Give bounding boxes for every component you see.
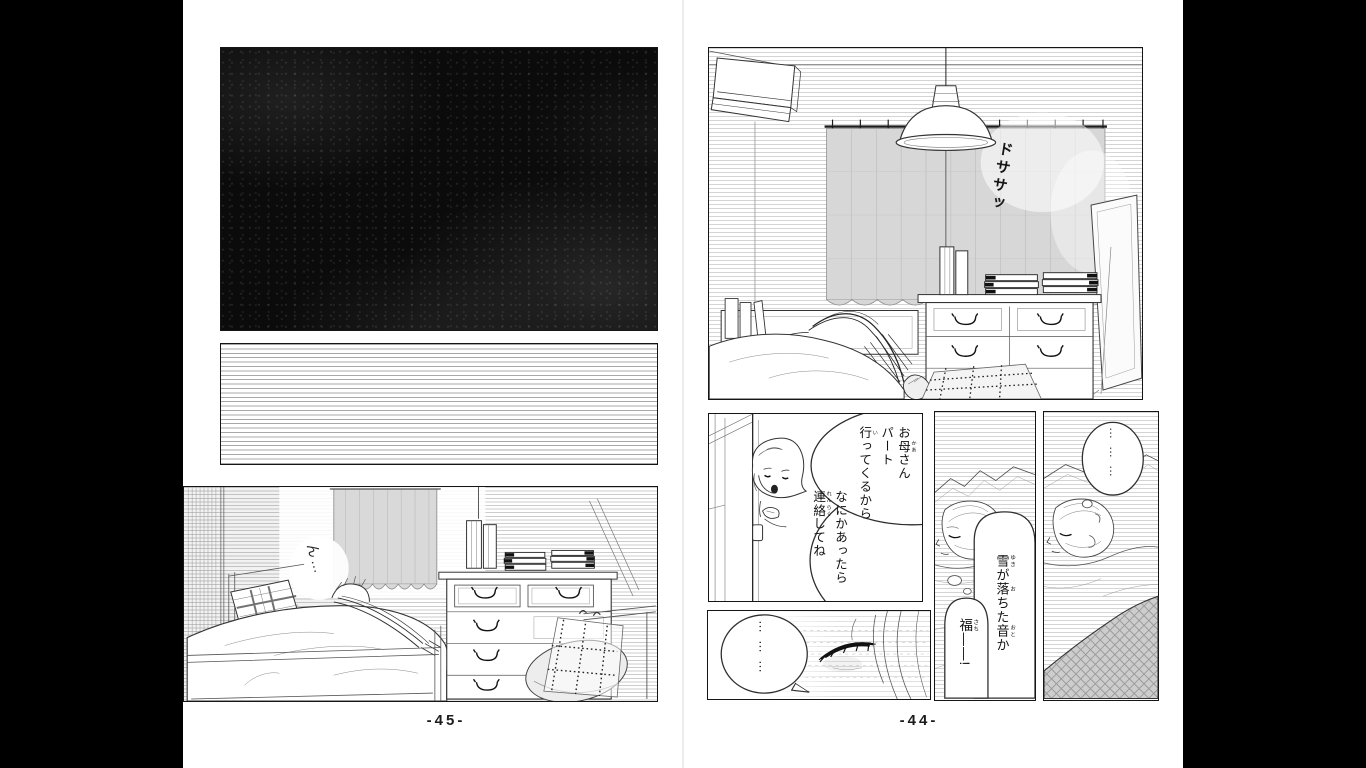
book-stack-2 [551,550,595,568]
sleeping-person-illustration [1044,412,1158,700]
page-44[interactable]: ドササッ [683,0,1183,768]
waking-person-illustration [935,412,1035,700]
bedroom-morning-illustration [709,48,1142,399]
panel-bedroom-wide: ん… [183,486,658,702]
book-stack-2 [1042,273,1098,293]
viewer-background: { "viewer": { "background_color": "#0000… [0,0,1366,768]
panel-closed-eye: ……… [707,610,931,700]
speech-calling-fuku: 福さち——! [955,618,978,666]
page-number-45: -45- [386,712,506,729]
panel-wake-thought: 雪ゆきが落おちた音おとか 福さち——! [934,411,1036,701]
book-stack-1 [504,552,546,570]
air-conditioner [711,58,800,122]
panel-darkness [220,47,658,331]
mother-figure [752,438,806,527]
page-gutter [682,0,684,768]
page-45[interactable]: ん… -45- [183,0,683,768]
hair-strands [852,611,927,699]
page-number-44: -44- [859,712,979,729]
closed-eye-illustration [708,611,930,699]
manga-spread[interactable]: ん… -45- [183,0,1183,768]
bedroom-night-illustration [184,487,657,701]
speech-snow-sound: 雪ゆきが落おちた音おとか [993,554,1015,652]
book-stack-1 [985,275,1039,295]
speech-mother-going-to-work: お母かあさんパート行いってくるから [855,426,916,601]
panel-lined-wall [220,343,658,465]
panel-mother-doorway: お母かあさんパート行いってくるから なにかあったら連れん絡らくしてね [708,413,923,602]
panel-bedroom-morning: ドササッ [708,47,1143,400]
panel-sleeping: ……… [1043,411,1159,701]
dark-blanket [1044,596,1158,698]
speech-mother-contact-me: なにかあったら連れん絡らくしてね [809,490,848,600]
thought-sleep-dots: ……… [1106,427,1122,484]
sleeping-head [1047,499,1114,557]
speech-silence-dots: ……… [755,620,773,680]
